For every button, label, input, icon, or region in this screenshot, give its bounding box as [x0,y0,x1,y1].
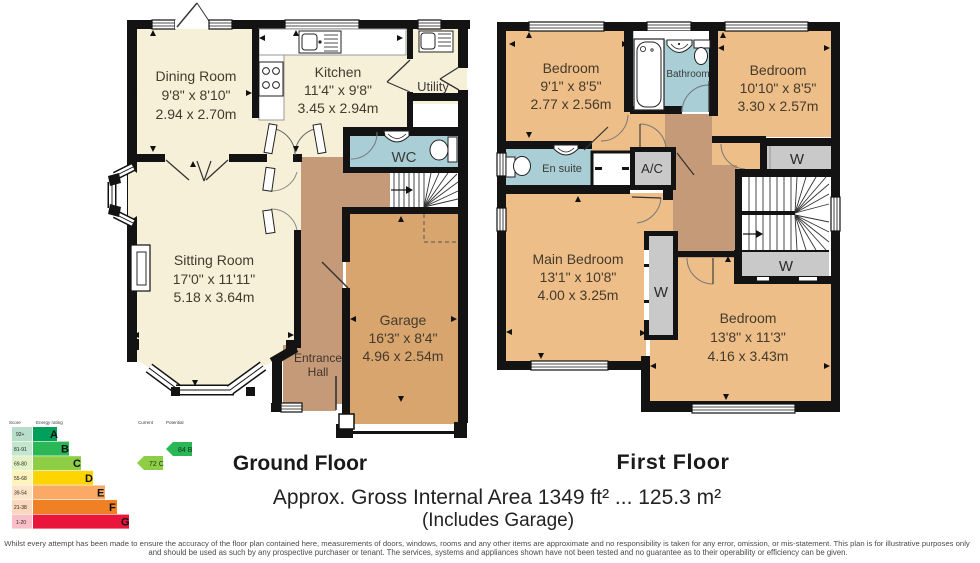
svg-text:9'1" x 8'5": 9'1" x 8'5" [540,78,601,94]
svg-text:11'4" x 9'8": 11'4" x 9'8" [304,82,372,98]
svg-text:Current: Current [138,420,154,425]
svg-text:2.77 x 2.56m: 2.77 x 2.56m [531,96,612,112]
svg-text:(Includes Garage): (Includes Garage) [422,510,574,531]
svg-text:WC: WC [392,149,417,166]
svg-text:9'8" x 8'10": 9'8" x 8'10" [162,87,231,103]
svg-text:Bedroom: Bedroom [750,62,807,78]
svg-text:C: C [73,458,81,470]
svg-text:W: W [779,258,794,275]
svg-text:39-54: 39-54 [14,491,27,497]
svg-text:17'0" x 11'11": 17'0" x 11'11" [173,271,256,287]
svg-text:Ground Floor: Ground Floor [233,452,367,475]
svg-text:F: F [109,502,116,514]
svg-text:Bedroom: Bedroom [543,60,600,76]
svg-text:A/C: A/C [641,161,663,176]
svg-text:Potential: Potential [166,420,184,425]
svg-text:Garage: Garage [380,312,427,328]
svg-text:G: G [121,517,130,529]
svg-text:Score: Score [9,420,21,425]
svg-text:92+: 92+ [16,432,25,438]
svg-text:Whilst every attempt has been: Whilst every attempt has been made to en… [4,539,970,548]
svg-text:16'3" x 8'4": 16'3" x 8'4" [369,330,438,346]
svg-text:Dining Room: Dining Room [156,68,237,84]
svg-text:5.18 x 3.64m: 5.18 x 3.64m [174,289,255,305]
svg-text:13'8" x 11'3": 13'8" x 11'3" [710,329,786,345]
svg-text:72 C: 72 C [149,461,164,468]
svg-text:A: A [50,429,58,441]
svg-text:Approx. Gross Internal Area 13: Approx. Gross Internal Area 1349 ft² ...… [273,486,721,509]
svg-text:En suite: En suite [542,163,582,175]
svg-text:Bedroom: Bedroom [720,310,777,326]
svg-text:69-80: 69-80 [14,462,27,468]
svg-text:D: D [85,473,93,485]
svg-text:Energy rating: Energy rating [36,420,63,425]
svg-text:First Floor: First Floor [617,450,730,474]
svg-text:and should be used as such by: and should be used as such by any prospe… [148,548,847,557]
svg-text:84 B: 84 B [178,447,193,454]
svg-text:2.94 x 2.70m: 2.94 x 2.70m [156,106,237,122]
svg-text:Main Bedroom: Main Bedroom [532,251,623,267]
svg-text:Utility: Utility [417,79,449,94]
svg-text:Kitchen: Kitchen [315,64,362,80]
svg-text:55-68: 55-68 [14,476,27,482]
svg-text:3.30 x 2.57m: 3.30 x 2.57m [738,98,819,114]
svg-text:W: W [654,284,669,301]
svg-text:1-20: 1-20 [16,520,26,526]
svg-text:10'10" x 8'5": 10'10" x 8'5" [740,80,817,96]
svg-text:4.96 x 2.54m: 4.96 x 2.54m [363,348,444,364]
svg-text:4.00 x 3.25m: 4.00 x 3.25m [538,287,619,303]
svg-text:21-38: 21-38 [14,505,27,511]
svg-text:Bathroom: Bathroom [666,69,709,80]
svg-text:E: E [97,487,104,499]
svg-text:4.16 x 3.43m: 4.16 x 3.43m [708,348,789,364]
svg-text:Sitting Room: Sitting Room [174,252,254,268]
svg-text:81-91: 81-91 [14,447,27,453]
svg-text:W: W [790,151,805,168]
svg-text:3.45 x 2.94m: 3.45 x 2.94m [298,100,379,116]
svg-text:B: B [61,444,69,456]
svg-text:Entrance: Entrance [294,351,342,365]
svg-text:Hall: Hall [308,365,329,379]
svg-text:13'1" x 10'8": 13'1" x 10'8" [540,269,617,285]
